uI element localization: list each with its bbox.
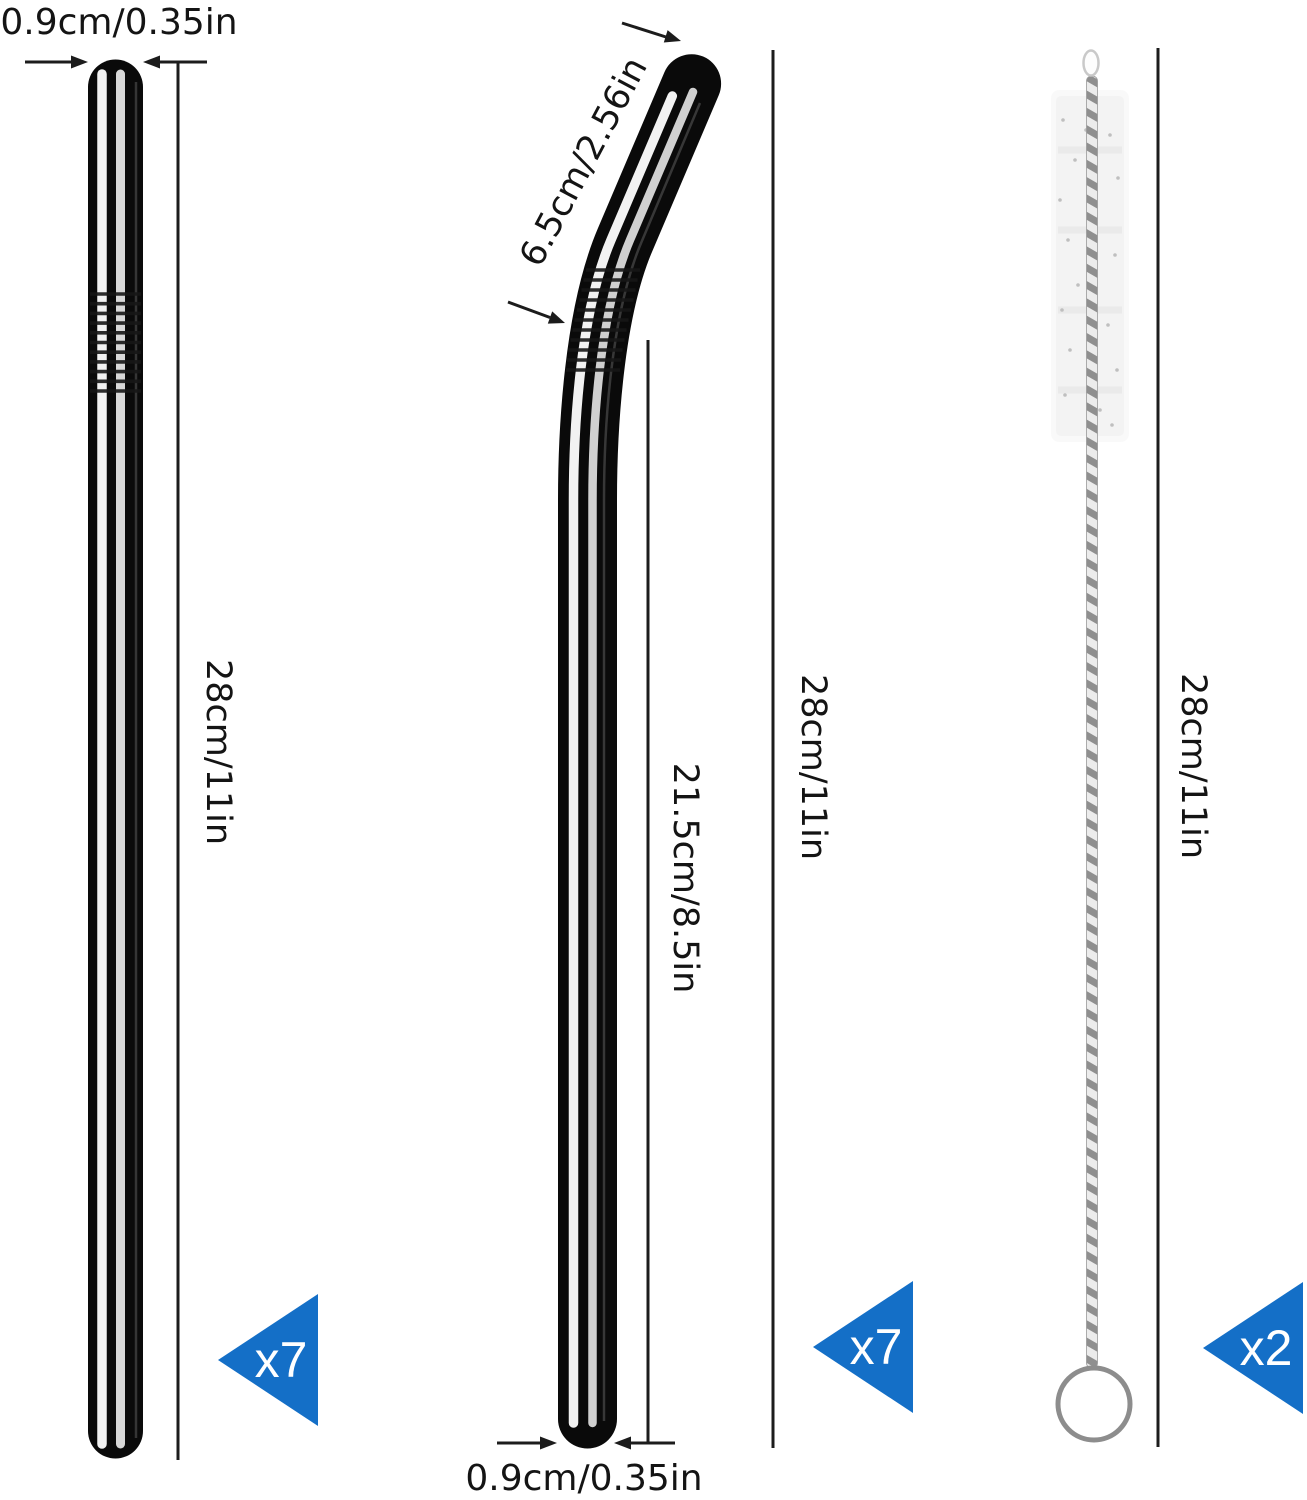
diagram-graphics xyxy=(0,0,1307,1500)
arrowhead-left-icon xyxy=(143,56,160,69)
bent-straw-graphic xyxy=(566,84,700,1423)
arrowhead-diagonal-icon xyxy=(664,30,681,42)
brush-handle-loop xyxy=(1058,1368,1130,1440)
product-dimension-diagram: 0.9cm/0.35in 28cm/11in 6.5cm/2.56in 21.5… xyxy=(0,0,1307,1500)
arrowhead-right-icon xyxy=(71,56,88,69)
brush-twisted-wire xyxy=(1087,76,1098,1368)
cleaning-brush-graphic xyxy=(1051,51,1130,1441)
bent-straw-count-label: x7 xyxy=(850,1318,903,1376)
straight-straw-diameter-label: 0.9cm/0.35in xyxy=(0,2,238,43)
bent-straw-bend-arrow-bottom xyxy=(508,302,550,318)
straight-straw-length-label: 28cm/11in xyxy=(198,659,238,845)
arrowhead-diagonal-icon xyxy=(548,311,565,323)
brush-count-label: x2 xyxy=(1240,1319,1293,1377)
bent-straw-diameter-label: 0.9cm/0.35in xyxy=(464,1458,704,1499)
bent-straw-straight-section-label: 21.5cm/8.5in xyxy=(665,763,705,994)
brush-length-label: 28cm/11in xyxy=(1173,673,1213,859)
straight-straw-count-label: x7 xyxy=(255,1331,308,1389)
arrowhead-right-icon xyxy=(540,1437,557,1450)
bent-straw-bend-arrow-top xyxy=(622,23,666,37)
arrowhead-left-icon xyxy=(614,1437,631,1450)
bent-straw-total-length-label: 28cm/11in xyxy=(793,674,833,860)
straight-straw-graphic xyxy=(90,74,141,1444)
brush-tip xyxy=(1084,51,1099,76)
